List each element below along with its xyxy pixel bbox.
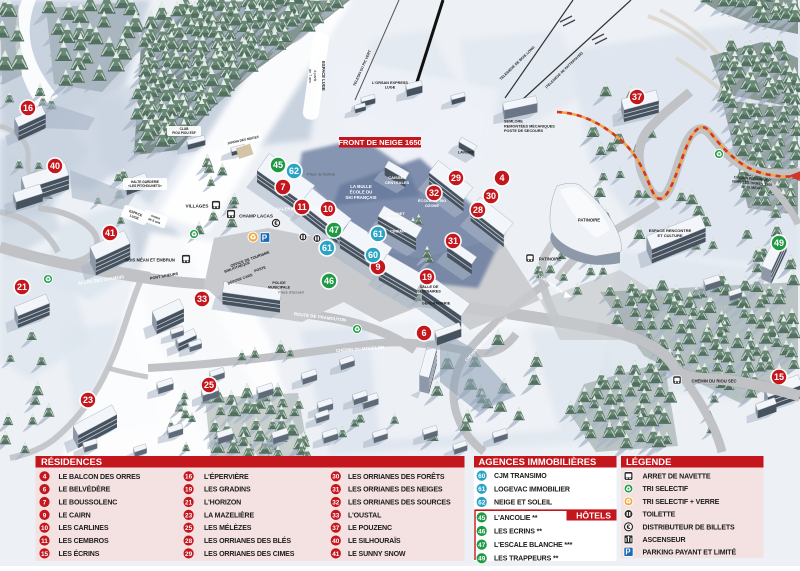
svg-text:AGENCES IMMOBILIÈRES: AGENCES IMMOBILIÈRES: [479, 456, 597, 467]
svg-text:60: 60: [478, 473, 486, 480]
svg-text:10: 10: [41, 525, 49, 532]
svg-text:LES ORRIANES DES FORÊTS: LES ORRIANES DES FORÊTS: [348, 472, 445, 481]
svg-text:6: 6: [43, 487, 47, 494]
svg-text:OZONE: OZONE: [425, 203, 440, 208]
svg-text:POSTE DE SECOURS: POSTE DE SECOURS: [504, 129, 543, 133]
svg-text:LOGEVAC IMMOBILIER: LOGEVAC IMMOBILIER: [494, 486, 570, 493]
svg-text:LE CAIRN: LE CAIRN: [59, 512, 91, 519]
svg-text:♻: ♻: [45, 275, 51, 283]
svg-text:CHEMIN DU RIOU SEC: CHEMIN DU RIOU SEC: [691, 379, 736, 384]
svg-text:LES ORRIANES DES BLÉS: LES ORRIANES DES BLÉS: [204, 536, 291, 545]
svg-text:Place du festival: Place du festival: [307, 172, 335, 176]
svg-text:PATINOIRE: PATINOIRE: [578, 218, 600, 223]
svg-text:19: 19: [185, 487, 193, 494]
svg-text:POLICE: POLICE: [272, 281, 286, 285]
svg-text:LE SUNNY SNOW: LE SUNNY SNOW: [348, 551, 406, 558]
svg-text:LES CARLINES: LES CARLINES: [59, 525, 109, 532]
svg-text:«LES PITCHOUNETS»: «LES PITCHOUNETS»: [128, 184, 162, 188]
svg-text:23: 23: [185, 512, 193, 519]
svg-text:32: 32: [332, 499, 340, 506]
svg-text:6: 6: [421, 328, 426, 338]
svg-text:30: 30: [486, 191, 496, 201]
svg-text:LAVERIE: LAVERIE: [458, 150, 475, 154]
svg-text:♻: ♻: [250, 233, 257, 242]
svg-text:P: P: [625, 548, 630, 557]
svg-text:LES ORRIANES DES NEIGES: LES ORRIANES DES NEIGES: [348, 487, 443, 494]
svg-text:4: 4: [499, 173, 504, 183]
svg-text:LA MAZELIÈRE: LA MAZELIÈRE: [204, 510, 254, 519]
svg-text:21: 21: [17, 282, 27, 292]
svg-text:16: 16: [23, 103, 33, 113]
svg-text:61: 61: [373, 229, 383, 239]
svg-text:CJM TRANSIMO: CJM TRANSIMO: [494, 473, 547, 480]
svg-text:29: 29: [185, 551, 193, 558]
svg-text:ÉCOLE DU: ÉCOLE DU: [350, 190, 373, 195]
svg-text:LES CEMBROS: LES CEMBROS: [59, 538, 109, 545]
svg-text:L'ÉPERVIÈRE: L'ÉPERVIÈRE: [204, 472, 249, 481]
svg-text:LES MÉLÈZES: LES MÉLÈZES: [204, 523, 252, 532]
svg-text:LE BALCON DES ORRES: LE BALCON DES ORRES: [59, 474, 141, 481]
svg-text:L'ESCALE BLANCHE ***: L'ESCALE BLANCHE ***: [494, 542, 573, 549]
svg-text:L'ORSAN EXPRESS: L'ORSAN EXPRESS: [372, 81, 408, 85]
svg-text:L'OUSTAL: L'OUSTAL: [348, 512, 382, 519]
svg-text:LES TRAPPEURS **: LES TRAPPEURS **: [494, 556, 559, 563]
svg-text:TOILETTE: TOILETTE: [643, 512, 676, 519]
svg-text:LES ÉCRINS: LES ÉCRINS: [59, 549, 100, 558]
svg-text:46: 46: [324, 276, 334, 286]
svg-text:SKI FRANÇAIS: SKI FRANÇAIS: [345, 195, 376, 200]
svg-text:33: 33: [332, 512, 340, 519]
svg-text:LES ECRINS **: LES ECRINS **: [494, 529, 542, 536]
svg-text:62: 62: [289, 166, 299, 176]
svg-text:Place d'accueil: Place d'accueil: [278, 290, 303, 294]
svg-text:46: 46: [478, 528, 486, 535]
svg-text:LES ORRIANES DES CIMES: LES ORRIANES DES CIMES: [204, 551, 295, 558]
svg-text:60: 60: [368, 250, 378, 260]
svg-text:HÔTELS: HÔTELS: [576, 509, 611, 520]
svg-text:RÉSIDENCES: RÉSIDENCES: [41, 456, 102, 467]
svg-text:€: €: [627, 524, 631, 531]
svg-text:4: 4: [43, 474, 47, 481]
svg-text:41: 41: [332, 551, 340, 558]
svg-text:♻: ♻: [191, 230, 197, 238]
svg-text:SALLE DE: SALLE DE: [420, 285, 439, 289]
svg-text:61: 61: [478, 486, 486, 493]
svg-text:REMONTÉES MÉCANIQUES: REMONTÉES MÉCANIQUES: [504, 123, 555, 128]
svg-text:21: 21: [185, 499, 193, 506]
svg-text:28: 28: [473, 205, 483, 215]
svg-text:MUNICIPALE: MUNICIPALE: [268, 286, 291, 290]
svg-text:LES GRADINS: LES GRADINS: [204, 487, 251, 494]
svg-text:CINÉMA: CINÉMA: [390, 228, 406, 233]
svg-text:16: 16: [185, 474, 193, 481]
svg-text:15: 15: [774, 372, 784, 382]
svg-text:ASCENSEUR: ASCENSEUR: [643, 537, 686, 544]
svg-text:NEIGE ET SOLEIL: NEIGE ET SOLEIL: [494, 500, 553, 507]
svg-text:49: 49: [478, 556, 486, 563]
svg-text:LE SILHOURAÏS: LE SILHOURAÏS: [348, 537, 401, 545]
svg-text:37: 37: [332, 525, 340, 532]
svg-text:CHAMP LACAS: CHAMP LACAS: [239, 214, 273, 219]
svg-text:GENDARMERIE: GENDARMERIE: [422, 301, 451, 305]
svg-text:LÉGENDE: LÉGENDE: [626, 456, 671, 467]
svg-text:45: 45: [273, 160, 283, 170]
svg-text:L'ANCOLIE **: L'ANCOLIE **: [494, 515, 538, 522]
svg-text:CENTRALES: CENTRALES: [385, 180, 410, 185]
svg-text:40: 40: [50, 161, 60, 171]
svg-text:TRI SELECTIF: TRI SELECTIF: [643, 486, 689, 493]
svg-text:49: 49: [774, 238, 784, 248]
svg-text:ARRET DE NAVETTE: ARRET DE NAVETTE: [643, 474, 711, 481]
svg-text:TRI SELECTIF + VERRE: TRI SELECTIF + VERRE: [643, 499, 720, 506]
svg-text:32: 32: [429, 188, 439, 198]
svg-text:11: 11: [297, 202, 307, 212]
svg-text:47: 47: [329, 225, 339, 235]
svg-text:LE BELVÉDÈRE: LE BELVÉDÈRE: [59, 485, 111, 494]
svg-text:LE BOUSSOLENC: LE BOUSSOLENC: [59, 500, 118, 507]
svg-text:9: 9: [375, 262, 380, 272]
svg-text:30: 30: [332, 474, 340, 481]
svg-text:P: P: [262, 233, 268, 242]
svg-text:L'HORIZON: L'HORIZON: [204, 500, 241, 507]
svg-text:9: 9: [43, 512, 47, 519]
svg-text:45: 45: [478, 515, 486, 522]
svg-text:62: 62: [478, 499, 486, 506]
svg-text:LUGE: LUGE: [385, 86, 396, 90]
svg-text:♻: ♻: [626, 485, 632, 493]
svg-text:LES ORRIANES DES SOURCES: LES ORRIANES DES SOURCES: [348, 500, 451, 507]
svg-text:DISTRIBUTEUR DE BILLETS: DISTRIBUTEUR DE BILLETS: [643, 524, 736, 531]
svg-text:15: 15: [41, 551, 49, 558]
svg-text:de 7 ans: de 7 ans: [308, 69, 312, 83]
svg-text:41: 41: [105, 228, 115, 238]
svg-text:♻: ♻: [626, 498, 632, 506]
svg-text:♻: ♻: [716, 150, 722, 158]
svg-text:7: 7: [280, 182, 285, 192]
svg-text:28: 28: [185, 538, 193, 545]
svg-text:47: 47: [478, 542, 486, 549]
svg-text:♻: ♻: [354, 325, 360, 333]
svg-text:11: 11: [41, 538, 48, 545]
svg-text:SÉMINAIRES: SÉMINAIRES: [417, 289, 441, 294]
svg-text:25: 25: [185, 525, 193, 532]
svg-text:à partir: à partir: [313, 70, 317, 82]
svg-text:19: 19: [422, 272, 432, 282]
svg-text:40: 40: [332, 538, 340, 545]
svg-text:23: 23: [83, 395, 93, 405]
svg-text:61: 61: [322, 243, 332, 253]
svg-text:33: 33: [197, 294, 207, 304]
svg-text:7: 7: [43, 499, 47, 506]
svg-text:10: 10: [323, 204, 333, 214]
svg-text:ESPACE LUGE: ESPACE LUGE: [321, 61, 326, 91]
svg-text:ET CULTURE: ET CULTURE: [657, 233, 682, 238]
svg-text:37: 37: [632, 92, 642, 102]
svg-text:31: 31: [448, 236, 458, 246]
svg-text:PARKING PAYANT ET LIMITÉ: PARKING PAYANT ET LIMITÉ: [643, 547, 737, 556]
svg-text:LE POUZENC: LE POUZENC: [348, 525, 392, 532]
svg-text:LA BULLE: LA BULLE: [350, 184, 372, 189]
svg-text:31: 31: [332, 487, 340, 494]
svg-text:MÉDICAL: MÉDICAL: [387, 216, 406, 221]
svg-text:BOIS MÉAN ET EMBRUN: BOIS MÉAN ET EMBRUN: [125, 258, 175, 263]
svg-text:VILLAGES: VILLAGES: [186, 204, 209, 209]
svg-text:PIOU PIOU ESF: PIOU PIOU ESF: [172, 131, 196, 135]
svg-text:FRONT DE NEIGE 1650: FRONT DE NEIGE 1650: [338, 138, 422, 147]
svg-text:25: 25: [204, 380, 214, 390]
svg-text:PATINOIRE: PATINOIRE: [539, 257, 561, 262]
svg-text:SEMLORE: SEMLORE: [504, 120, 523, 124]
svg-text:29: 29: [451, 173, 461, 183]
